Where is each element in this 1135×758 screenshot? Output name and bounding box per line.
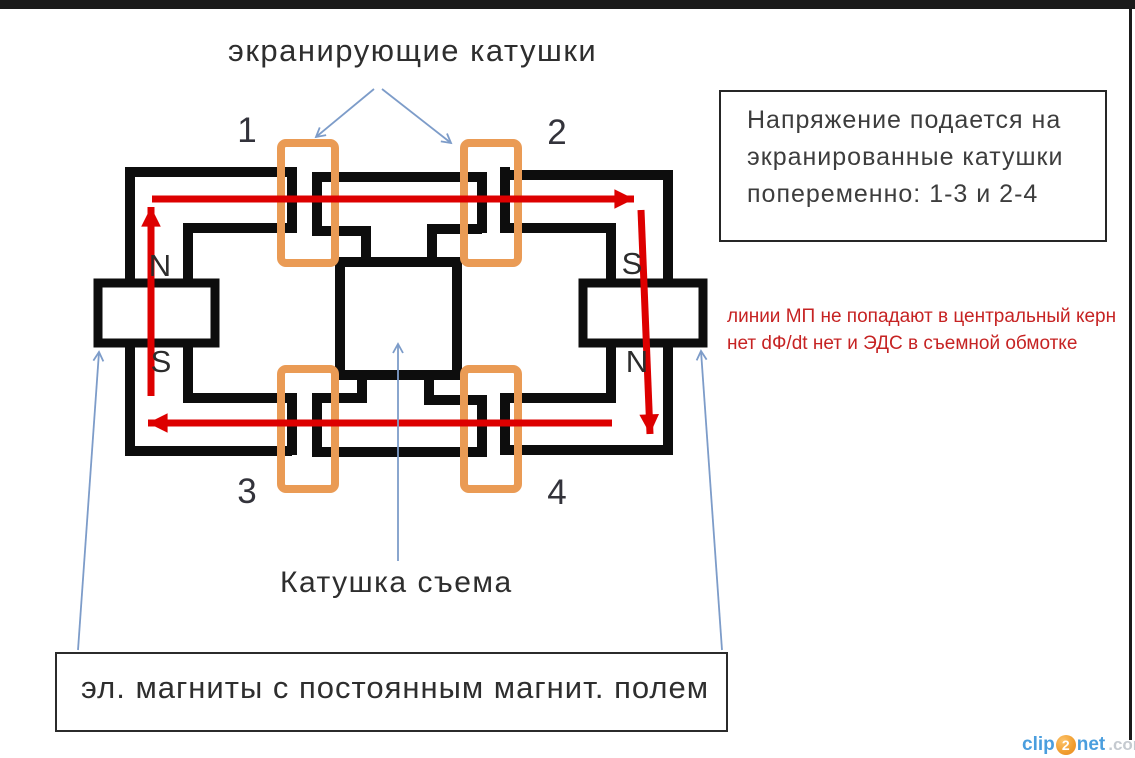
pole-label-right-bottom: N — [623, 346, 651, 377]
right-magnet-pointer-arrow — [701, 351, 722, 650]
voltage-note-box: Напряжение подается на экранированные ка… — [719, 90, 1107, 242]
watermark-2-badge: 2 — [1056, 735, 1076, 755]
flux-arrow-right — [641, 210, 650, 434]
coil-number-4: 4 — [545, 475, 569, 510]
voltage-note-line: попеременно: 1-3 и 2-4 — [747, 176, 1097, 213]
voltage-note-line: Напряжение подается на — [747, 102, 1097, 139]
magnets-label-box: эл. магниты с постоянным магнит. полем — [55, 652, 728, 732]
shielding-coils-label: экранирующие катушки — [228, 33, 597, 69]
pole-label-right-top: S — [618, 248, 646, 279]
pole-label-left-top: N — [146, 250, 174, 281]
left-magnet-pointer-arrow — [78, 352, 99, 650]
clip2net-watermark: clip 2 net .com — [1022, 734, 1135, 755]
flux-annotation-line: нет dФ/dt нет и ЭДС в съемной обмотке — [727, 330, 1116, 357]
pole-label-left-bottom: S — [147, 346, 175, 377]
flux-annotation: линии МП не попадают в центральный керн … — [727, 303, 1116, 357]
coil-number-3: 3 — [235, 474, 259, 509]
magnets-label: эл. магниты с постоянным магнит. полем — [81, 670, 726, 706]
screenshot-root: экранирующие катушки 1 2 3 4 N S S N Нап… — [0, 0, 1135, 758]
left-electromagnet — [98, 283, 215, 343]
voltage-note-line: экранированные катушки — [747, 139, 1097, 176]
watermark-com-text: .com — [1108, 735, 1135, 755]
pickup-coil-label: Катушка съема — [280, 566, 506, 600]
watermark-clip-text: clip — [1022, 734, 1055, 756]
title-pointer-right-arrow — [382, 89, 451, 143]
coil-number-2: 2 — [545, 115, 569, 150]
flux-annotation-line: линии МП не попадают в центральный керн — [727, 303, 1116, 330]
watermark-net-text: net — [1077, 734, 1106, 756]
title-pointer-left-arrow — [316, 89, 374, 137]
coil-number-1: 1 — [235, 113, 259, 148]
